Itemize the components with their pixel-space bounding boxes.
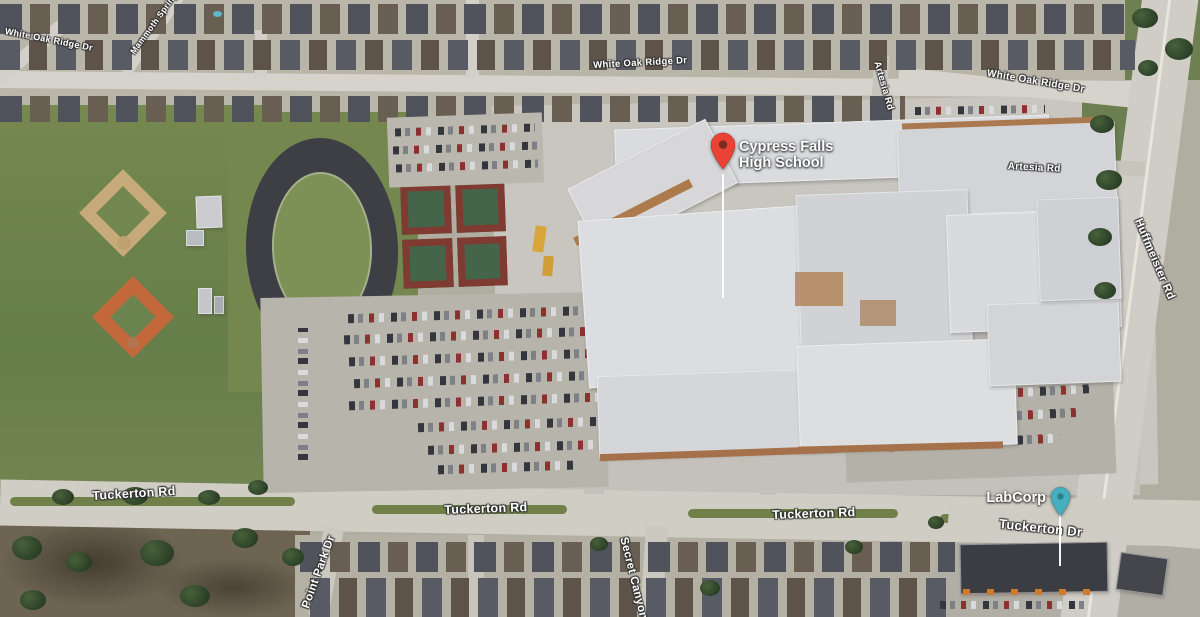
road-label-tuckerton-rd-right: Tuckerton Rd [772,505,856,522]
school-pin-body [711,133,735,169]
tennis-court-pad [400,183,451,234]
school-place-label[interactable]: Cypress Falls High School [739,139,833,171]
tree [1138,60,1158,76]
labcorp-pin-icon[interactable] [1051,487,1070,516]
school-pin-dot [719,140,727,148]
softball-home-plate-dirt [127,337,139,349]
school-courtyard-1 [795,272,843,306]
labcorp-pin-leader-line [1059,512,1061,566]
tree [1096,170,1122,190]
road-label-tuckerton-rd-center: Tuckerton Rd [444,500,528,517]
fieldhouse-building-2 [186,230,204,246]
scrub-field-southwest [0,518,310,617]
tree [20,590,46,610]
baseball-home-plate-dirt [117,236,131,250]
tree [1094,282,1116,299]
tree [66,552,92,572]
tree [928,516,944,529]
tennis-courts [400,181,508,289]
tennis-court-pad [402,238,453,289]
satellite-map-canvas[interactable]: Tuckerton Rd Tuckerton Rd Tuckerton Rd T… [0,0,1200,617]
labcorp-awnings [963,589,1105,595]
tree [248,480,268,495]
house-row-north-2 [0,40,1135,70]
school-pin-leader-line [722,174,724,298]
school-courtyard-2 [860,300,896,326]
tree [1088,228,1112,246]
labcorp-pin-body [1051,487,1070,516]
tree [52,489,74,505]
parking-row-vertical [298,328,308,460]
labcorp-pin-dot [1057,493,1063,499]
tree [282,548,304,566]
school-building-south-central-wing [796,338,1018,452]
school-bus-2 [542,256,554,277]
tree [1132,8,1158,28]
tree [12,536,42,560]
fieldhouse-building-4 [214,296,224,314]
tree [140,540,174,566]
parking-row [940,601,1090,609]
tree [198,490,220,505]
corner-retail-building [1116,552,1169,596]
fieldhouse-building-1 [195,196,222,229]
tree [700,580,720,596]
tennis-court-pad [457,236,508,287]
school-place-label-line1: Cypress Falls [739,139,833,155]
labcorp-building [960,542,1109,595]
fieldhouse-building-3 [198,288,212,314]
tree [845,540,863,554]
tree [180,585,210,607]
labcorp-place-label[interactable]: LabCorp [958,490,1046,506]
school-entrance-drive-2 [760,455,776,495]
tree [1165,38,1193,60]
tree [232,528,258,548]
backyard-pool [213,11,222,17]
tennis-court-pad [455,181,506,232]
tree [590,537,608,551]
school-pin-icon[interactable] [711,132,735,170]
school-place-label-line2: High School [739,155,833,171]
tree [1090,115,1114,133]
school-building-southeast-wing [987,300,1122,387]
